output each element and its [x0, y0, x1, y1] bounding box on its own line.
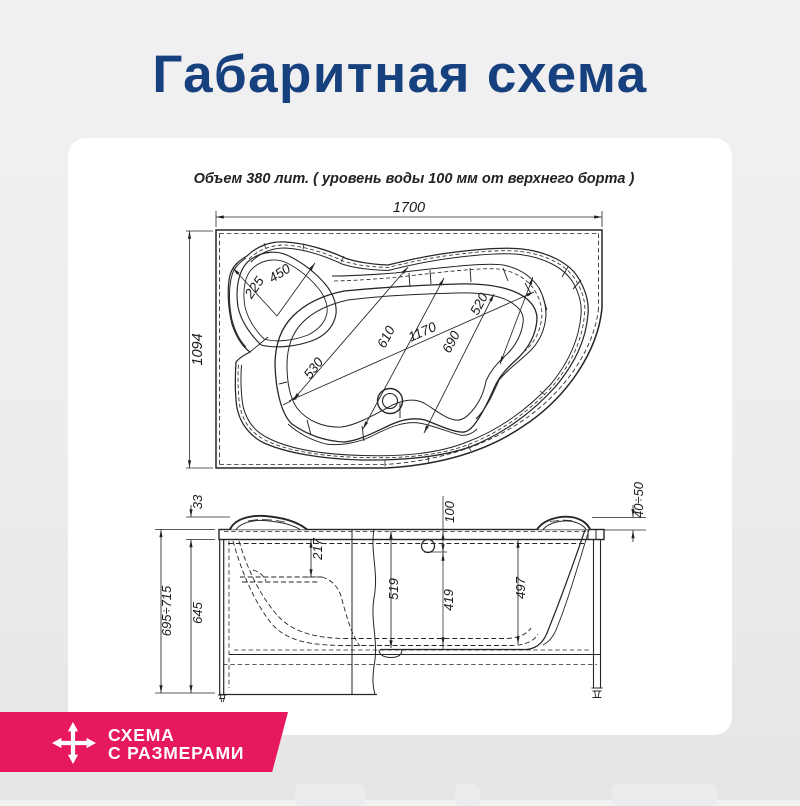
svg-text:1094: 1094: [190, 333, 206, 365]
svg-text:225: 225: [241, 273, 267, 301]
svg-text:Объем 380 лит. ( уровень воды: Объем 380 лит. ( уровень воды 100 мм от …: [194, 171, 635, 187]
svg-text:33: 33: [190, 494, 205, 509]
svg-text:690: 690: [439, 328, 463, 355]
svg-text:695÷715: 695÷715: [159, 585, 174, 636]
svg-text:419: 419: [441, 589, 456, 611]
svg-text:530: 530: [301, 354, 327, 381]
svg-text:645: 645: [190, 601, 205, 623]
svg-text:217: 217: [310, 537, 325, 560]
svg-text:497: 497: [513, 576, 528, 598]
svg-text:519: 519: [386, 578, 401, 600]
svg-text:1170: 1170: [406, 319, 439, 345]
svg-text:100: 100: [442, 500, 457, 522]
svg-text:40÷50: 40÷50: [631, 481, 646, 518]
svg-text:1700: 1700: [393, 200, 425, 216]
svg-text:610: 610: [374, 323, 398, 350]
